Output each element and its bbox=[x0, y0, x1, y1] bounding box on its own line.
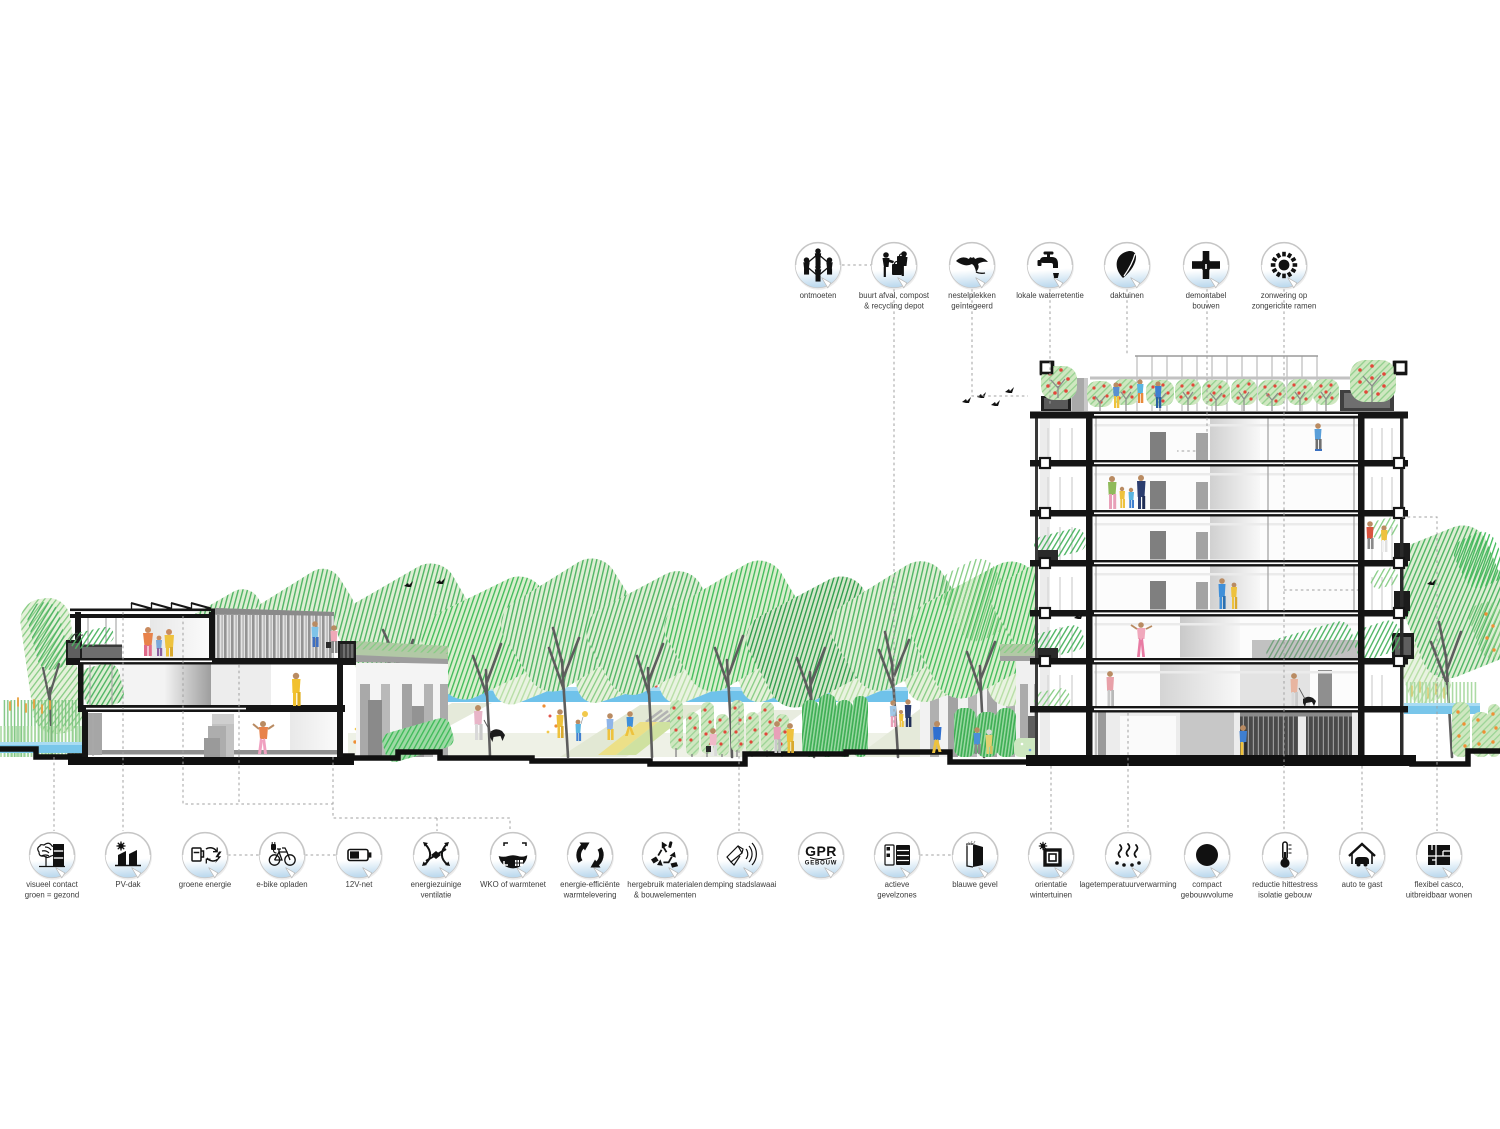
svg-text:WKO of warmtenet: WKO of warmtenet bbox=[480, 880, 547, 889]
svg-text:gebouwvolume: gebouwvolume bbox=[1181, 891, 1233, 900]
svg-text:GPR: GPR bbox=[805, 843, 837, 859]
svg-text:daktuinen: daktuinen bbox=[1110, 291, 1144, 300]
svg-text:PV-dak: PV-dak bbox=[115, 880, 140, 889]
svg-text:uitbreidbaar wonen: uitbreidbaar wonen bbox=[1406, 891, 1472, 900]
svg-text:isolatie gebouw: isolatie gebouw bbox=[1258, 891, 1312, 900]
svg-text:groen = gezond: groen = gezond bbox=[25, 891, 79, 900]
svg-text:nestelplekken: nestelplekken bbox=[948, 291, 996, 300]
svg-text:GEBOUW: GEBOUW bbox=[805, 861, 837, 867]
svg-text:buurt afval, compost: buurt afval, compost bbox=[859, 291, 930, 300]
svg-text:orientatie: orientatie bbox=[1035, 880, 1067, 889]
svg-text:& recycling depot: & recycling depot bbox=[864, 302, 925, 311]
svg-text:ventilatie: ventilatie bbox=[421, 891, 452, 900]
svg-text:groene energie: groene energie bbox=[179, 880, 231, 889]
svg-text:energie-efficiënte: energie-efficiënte bbox=[560, 880, 620, 889]
svg-text:bouwen: bouwen bbox=[1192, 302, 1219, 311]
svg-text:energiezuinige: energiezuinige bbox=[411, 880, 462, 889]
svg-text:actieve: actieve bbox=[885, 880, 910, 889]
svg-text:flexibel casco,: flexibel casco, bbox=[1415, 880, 1464, 889]
svg-text:reductie hittestress: reductie hittestress bbox=[1252, 880, 1318, 889]
svg-text:geïntegeerd: geïntegeerd bbox=[951, 302, 993, 311]
svg-text:visueel contact: visueel contact bbox=[26, 880, 78, 889]
svg-text:lokale waterretentie: lokale waterretentie bbox=[1016, 291, 1084, 300]
svg-text:warmtelevering: warmtelevering bbox=[563, 891, 617, 900]
svg-text:auto te gast: auto te gast bbox=[1342, 880, 1384, 889]
svg-text:compact: compact bbox=[1192, 880, 1222, 889]
svg-text:wintertuinen: wintertuinen bbox=[1029, 891, 1072, 900]
svg-text:12V-net: 12V-net bbox=[346, 880, 374, 889]
svg-text:ontmoeten: ontmoeten bbox=[800, 291, 837, 300]
svg-text:blauwe gevel: blauwe gevel bbox=[952, 880, 998, 889]
svg-text:& bouwelementen: & bouwelementen bbox=[634, 891, 696, 900]
svg-text:demping stadslawaai: demping stadslawaai bbox=[704, 880, 777, 889]
svg-text:hergebruik materialen: hergebruik materialen bbox=[627, 880, 702, 889]
svg-text:zonwering op: zonwering op bbox=[1261, 291, 1308, 300]
svg-text:e-bike opladen: e-bike opladen bbox=[256, 880, 307, 889]
svg-text:lagetemperatuurverwarming: lagetemperatuurverwarming bbox=[1079, 880, 1176, 889]
svg-text:demontabel: demontabel bbox=[1186, 291, 1227, 300]
svg-text:zongerichte ramen: zongerichte ramen bbox=[1252, 302, 1317, 311]
svg-text:gevelzones: gevelzones bbox=[877, 891, 917, 900]
